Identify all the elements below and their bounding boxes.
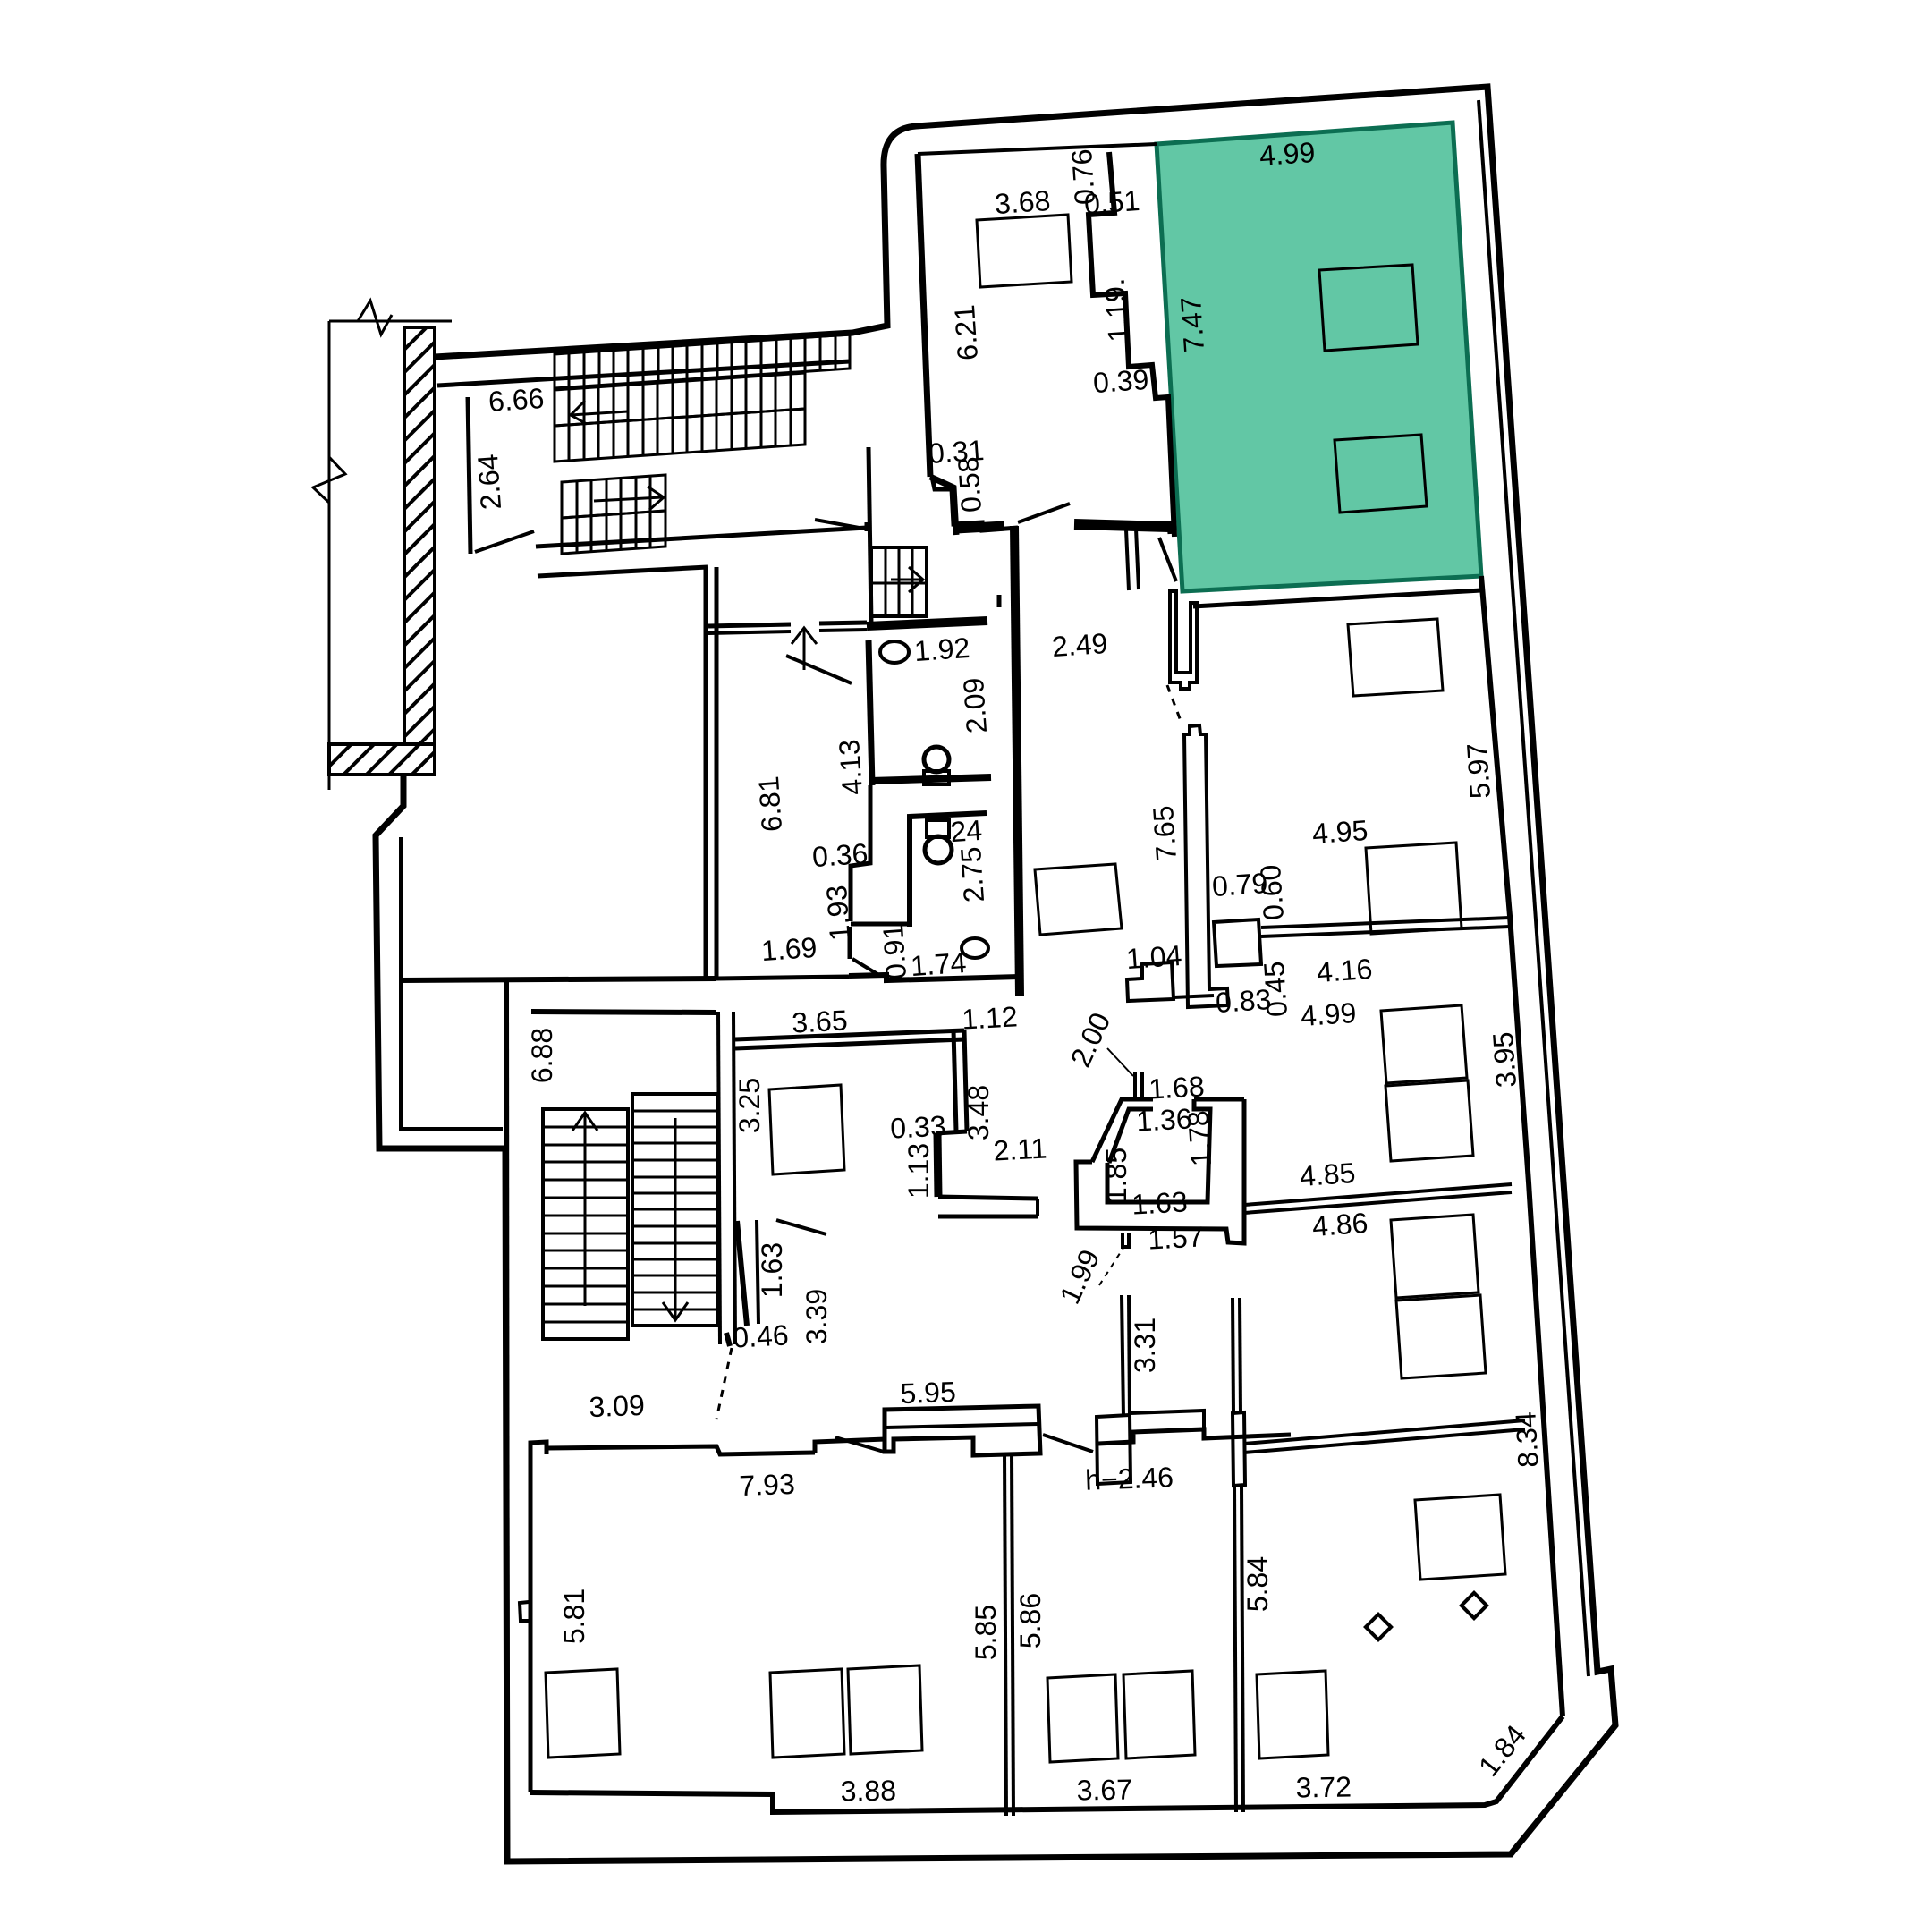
- svg-text:4.86: 4.86: [1311, 1207, 1369, 1242]
- svg-text:6.66: 6.66: [487, 382, 546, 418]
- svg-text:h−2.46: h−2.46: [1085, 1461, 1174, 1496]
- svg-text:6.88: 6.88: [526, 1028, 558, 1083]
- svg-text:0.51: 0.51: [1083, 184, 1141, 220]
- svg-text:1.63: 1.63: [1131, 1185, 1188, 1220]
- svg-text:3.25: 3.25: [733, 1078, 766, 1133]
- svg-text:5.81: 5.81: [558, 1589, 590, 1644]
- svg-text:3.72: 3.72: [1295, 1770, 1352, 1803]
- svg-text:4.95: 4.95: [1311, 814, 1369, 850]
- svg-text:2.11: 2.11: [993, 1131, 1048, 1166]
- svg-text:4.99: 4.99: [1300, 996, 1358, 1032]
- svg-text:5.97: 5.97: [1461, 741, 1496, 800]
- svg-text:3.48: 3.48: [962, 1085, 995, 1140]
- svg-text:1.74: 1.74: [910, 946, 968, 982]
- svg-text:2.49: 2.49: [1051, 627, 1109, 663]
- svg-text:1.12: 1.12: [961, 1000, 1018, 1035]
- svg-text:24: 24: [949, 814, 983, 848]
- svg-text:2.09: 2.09: [957, 676, 993, 734]
- svg-text:2.75: 2.75: [954, 845, 990, 903]
- svg-text:3.09: 3.09: [589, 1389, 645, 1423]
- svg-text:5.86: 5.86: [1014, 1593, 1046, 1648]
- svg-text:1.57: 1.57: [1147, 1220, 1204, 1255]
- svg-text:1.78: 1.78: [1182, 1109, 1217, 1167]
- svg-text:1.85: 1.85: [1100, 1148, 1132, 1203]
- svg-text:3.39: 3.39: [801, 1289, 833, 1344]
- svg-text:0.36: 0.36: [811, 837, 869, 873]
- svg-text:5.95: 5.95: [900, 1376, 956, 1410]
- svg-text:3.31: 3.31: [1129, 1318, 1161, 1373]
- svg-text:0.33: 0.33: [889, 1109, 946, 1144]
- svg-text:0.58: 0.58: [952, 455, 987, 513]
- svg-text:1.13: 1.13: [902, 1143, 935, 1199]
- svg-text:1.69: 1.69: [760, 931, 818, 967]
- svg-text:7.47: 7.47: [1174, 295, 1210, 353]
- svg-text:6.81: 6.81: [752, 775, 788, 833]
- svg-text:7.65: 7.65: [1147, 804, 1182, 862]
- svg-text:6.21: 6.21: [948, 303, 984, 361]
- svg-text:4.99: 4.99: [1258, 136, 1317, 172]
- svg-text:4.13: 4.13: [833, 738, 869, 796]
- svg-text:1.92: 1.92: [913, 631, 971, 667]
- svg-text:0.39: 0.39: [1092, 363, 1150, 399]
- svg-text:0.60: 0.60: [1254, 863, 1290, 921]
- svg-text:3.67: 3.67: [1076, 1773, 1132, 1806]
- svg-text:1.63: 1.63: [756, 1242, 788, 1298]
- svg-text:0.91: 0.91: [877, 922, 912, 980]
- svg-text:4.85: 4.85: [1299, 1157, 1357, 1192]
- svg-text:1.04: 1.04: [1125, 939, 1183, 975]
- svg-text:4.16: 4.16: [1316, 953, 1374, 988]
- svg-text:1.68: 1.68: [1148, 1070, 1205, 1105]
- svg-text:3.68: 3.68: [994, 184, 1052, 220]
- svg-text:3.65: 3.65: [791, 1004, 848, 1038]
- svg-text:8.34: 8.34: [1509, 1411, 1544, 1469]
- svg-text:0.46: 0.46: [732, 1318, 789, 1353]
- svg-text:7.93: 7.93: [739, 1468, 795, 1502]
- svg-text:1.19.: 1.19.: [1098, 277, 1135, 343]
- svg-text:5.85: 5.85: [970, 1605, 1002, 1660]
- svg-text:0.83: 0.83: [1215, 983, 1273, 1019]
- svg-text:5.84: 5.84: [1241, 1556, 1274, 1612]
- svg-text:2.64: 2.64: [471, 453, 507, 511]
- svg-text:1.93: 1.93: [820, 884, 856, 942]
- svg-text:3.95: 3.95: [1487, 1030, 1522, 1089]
- svg-text:3.88: 3.88: [840, 1774, 896, 1807]
